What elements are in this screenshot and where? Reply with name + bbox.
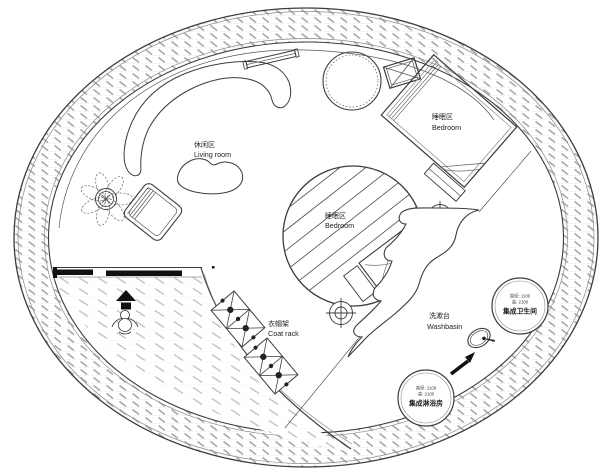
- label-washbasin-en: Washbasin: [427, 322, 462, 331]
- toilet-pod-height: 高: 2100: [512, 299, 529, 306]
- floor-plan-svg: 直径: 1100 高: 2100 集成卫生间 直径: 1100 高: 2100 …: [0, 0, 611, 473]
- shower-pod-height: 高: 2100: [418, 391, 435, 398]
- entry-wall: [53, 267, 202, 278]
- plant-icon: [79, 171, 133, 226]
- label-coat-rack-en: Coat rack: [268, 329, 299, 338]
- label-coat-rack-zh: 衣帽架: [268, 319, 289, 328]
- shower-pod-name: 集成淋浴房: [408, 399, 443, 408]
- washbasin-sink: [464, 324, 495, 353]
- wall-end-cap: [53, 267, 57, 278]
- partition-line: [479, 151, 531, 212]
- round-table: [323, 52, 381, 110]
- toilet-pod-diameter: 直径: 1100: [510, 293, 531, 299]
- wall-shelf: [243, 49, 299, 69]
- marker-dot: [212, 266, 215, 269]
- door-track-segment: [106, 271, 182, 277]
- shower-pod: 直径: 1100 高: 2100 集成淋浴房: [398, 370, 454, 426]
- label-bedroom-center-en: Bedroom: [325, 221, 354, 230]
- label-washbasin-zh: 洗漱台: [429, 311, 450, 320]
- label-living-room-en: Living room: [194, 150, 231, 159]
- label-bedroom-upper-zh: 睡眠区: [432, 113, 453, 121]
- label-living-room-zh: 休闲区: [194, 140, 215, 149]
- toilet-pod: 直径: 1100 高: 2100 集成卫生间: [492, 278, 548, 334]
- armchair: [122, 181, 184, 242]
- label-bedroom-upper-en: Bedroom: [432, 123, 461, 132]
- equipment-box: [383, 58, 420, 88]
- coffee-table: [177, 159, 242, 194]
- toilet-pod-name: 集成卫生间: [502, 307, 537, 316]
- floor-plan-page: 直径: 1100 高: 2100 集成卫生间 直径: 1100 高: 2100 …: [0, 0, 611, 473]
- door-track-segment: [56, 270, 93, 276]
- shower-pod-diameter: 直径: 1100: [416, 385, 437, 391]
- label-bedroom-center-zh: 睡眠区: [325, 212, 346, 220]
- direction-arrow: [451, 352, 475, 374]
